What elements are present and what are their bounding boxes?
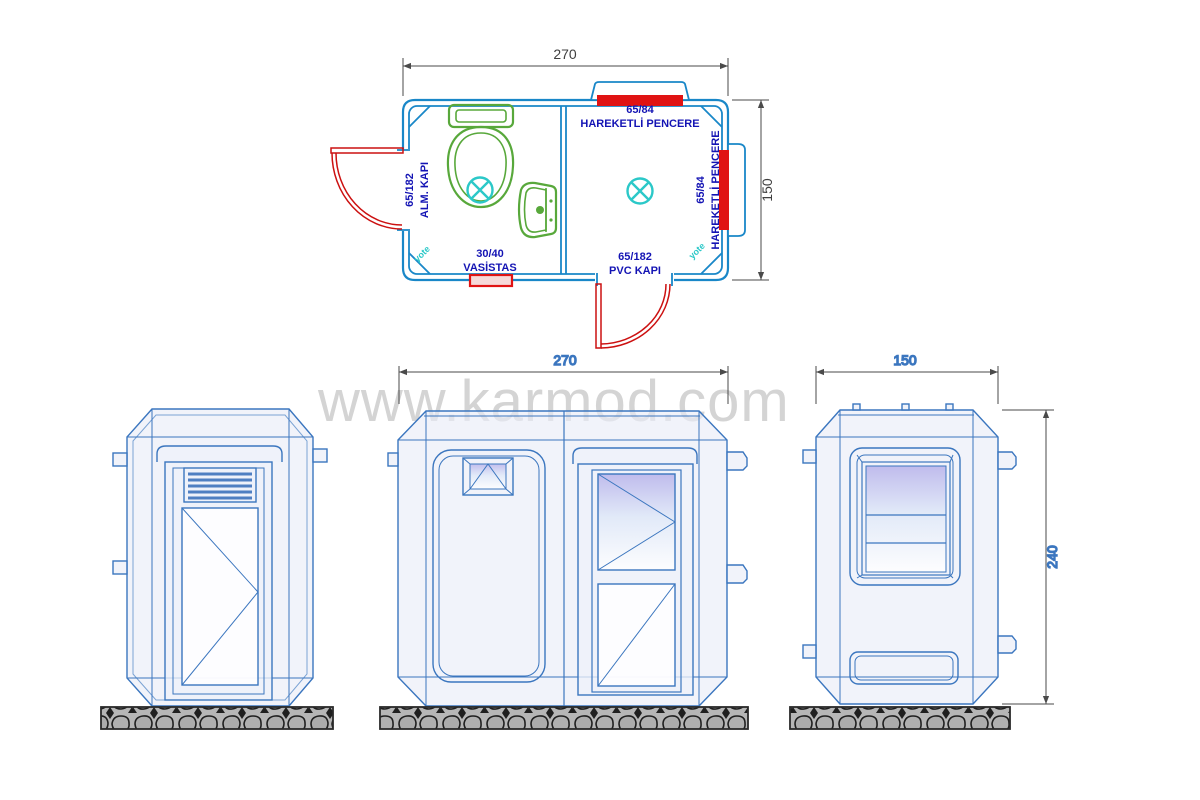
pvc-door-elevation	[573, 448, 697, 695]
right-window-size-label: 65/84	[695, 175, 707, 203]
right-width-dim-text: 150	[893, 352, 917, 368]
tab-left-top	[803, 450, 816, 463]
plan-height-dim-text: 150	[759, 178, 775, 202]
vasistas-window	[463, 458, 513, 495]
right-height-dim-text: 240	[1044, 545, 1060, 569]
tab-right-bottom	[727, 565, 747, 583]
technical-drawing: 270 150	[0, 0, 1200, 800]
right-window-frame	[728, 144, 745, 236]
tab-right-bottom	[998, 636, 1016, 653]
tab-left-bottom	[803, 645, 816, 658]
vasistas-name-label: VASİSTAS	[463, 261, 516, 274]
tab-left-bottom	[113, 561, 127, 574]
ground-strip-front	[380, 707, 748, 729]
right-width-dimension	[816, 366, 998, 404]
floor-plan: 270 150	[331, 46, 775, 348]
vasistas-size-label: 30/40	[476, 248, 504, 260]
top-window-name-label: HAREKETLİ PENCERE	[580, 117, 699, 130]
side-elevation-right: 150 240	[790, 352, 1060, 729]
tab-right-top	[727, 452, 747, 470]
sliding-window	[850, 448, 960, 585]
roof-lug-1	[853, 404, 860, 410]
roof-lug-3	[946, 404, 953, 410]
ground-strip-right	[790, 707, 1010, 729]
door-glass-top	[598, 474, 675, 570]
tab-left	[388, 453, 398, 466]
pvc-door-size-label: 65/182	[618, 251, 652, 263]
left-door-size-label: 65/182	[404, 173, 416, 207]
front-width-dim-text: 270	[553, 352, 577, 368]
roof-lug-2	[902, 404, 909, 410]
pvc-door-swing	[596, 284, 670, 348]
side-elevation-left	[101, 409, 333, 729]
tab-left-top	[113, 453, 127, 466]
top-window-size-label: 65/84	[626, 104, 654, 116]
pvc-door-name-label: PVC KAPI	[609, 265, 661, 277]
door-glass	[182, 508, 258, 685]
drawing-sheet: www.karmod.com	[0, 0, 1200, 800]
tab-right-top	[998, 452, 1016, 469]
left-door-swing	[331, 148, 403, 229]
left-door-name-label: ALM. KAPI	[419, 162, 431, 218]
front-width-dimension	[399, 366, 728, 404]
front-elevation: 270	[380, 352, 748, 729]
vasistas-marker	[470, 275, 512, 286]
tab-right-top	[313, 449, 327, 462]
right-window-name-label: HAREKETLİ PENCERE	[709, 130, 722, 249]
plan-width-dim-text: 270	[553, 46, 577, 62]
ground-strip-left	[101, 707, 333, 729]
door-louver	[184, 468, 256, 502]
door-hood	[157, 446, 282, 462]
